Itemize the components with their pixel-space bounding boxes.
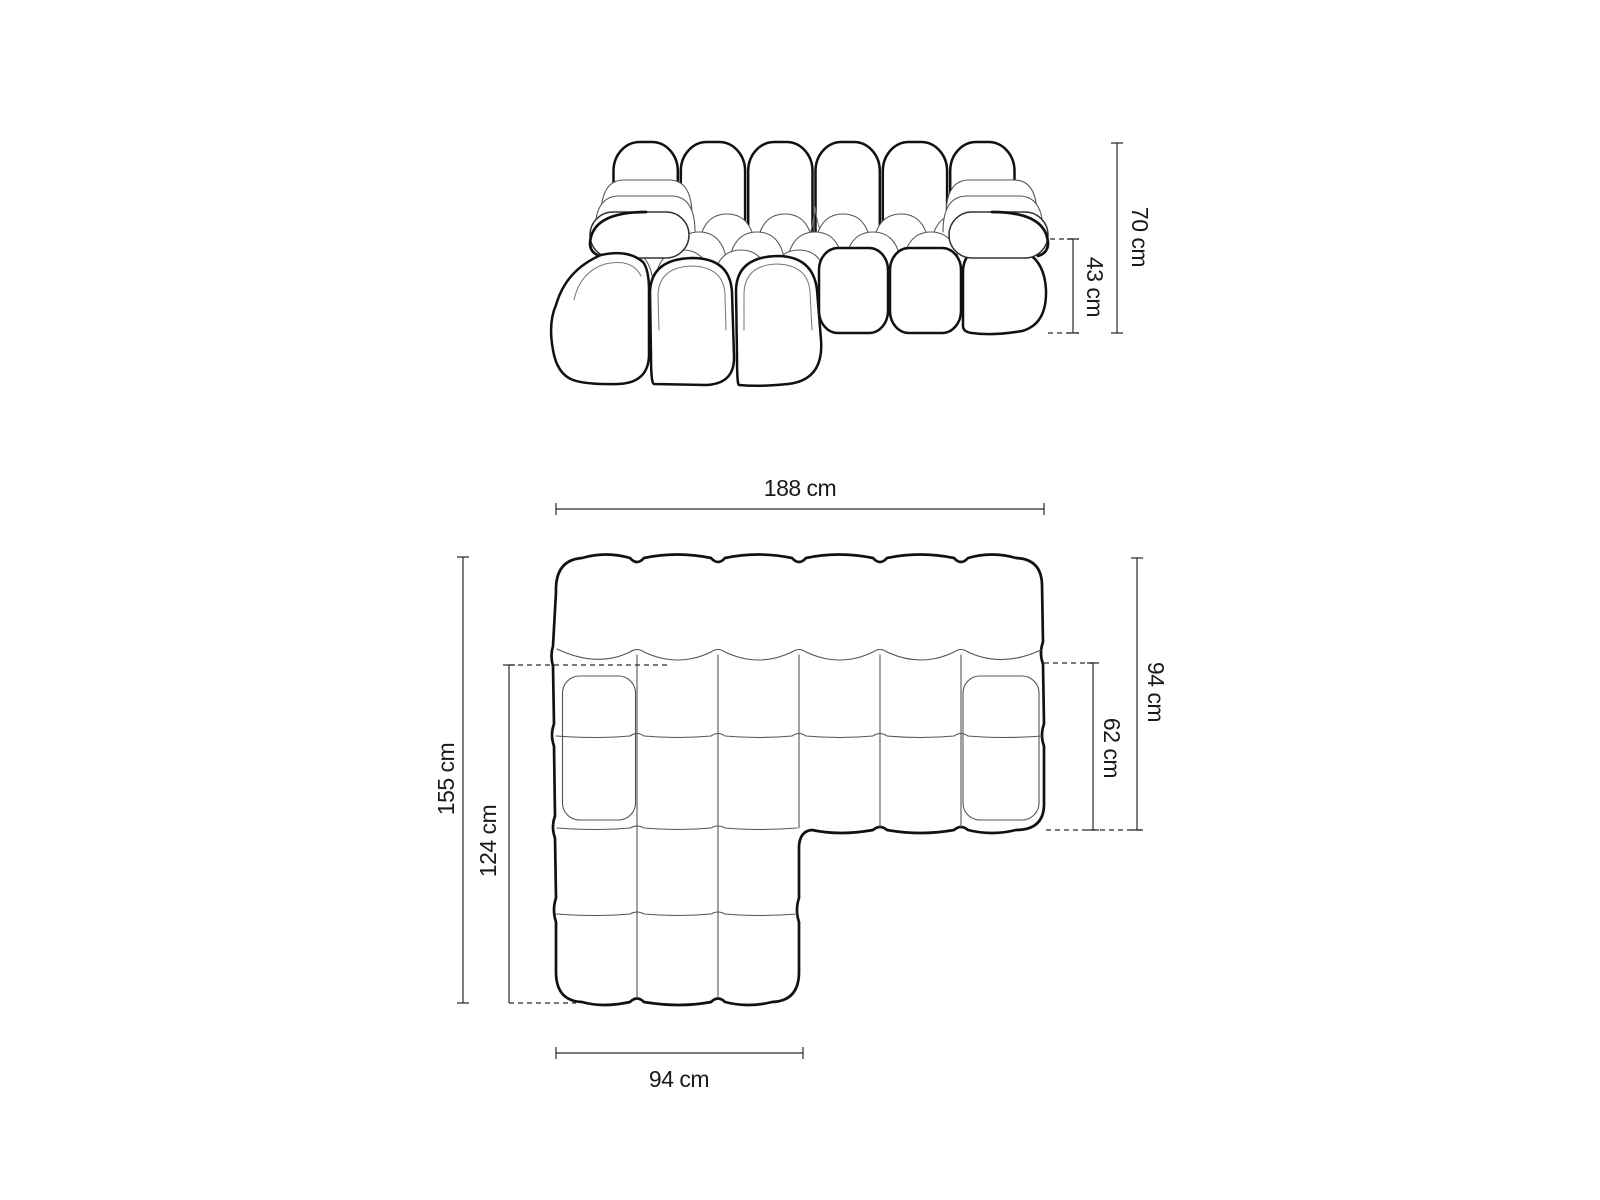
chaise-cushions bbox=[551, 253, 821, 386]
armrest-right bbox=[943, 180, 1048, 258]
dimension-line-seat-depth bbox=[1087, 663, 1099, 830]
dimension-line-chaise-depth bbox=[503, 665, 515, 1003]
dimension-line-total-width bbox=[556, 503, 1044, 515]
dim-label-body-depth: 94 cm bbox=[1143, 662, 1169, 722]
front-view: 70 cm 43 cm bbox=[551, 142, 1153, 386]
top-view: 188 cm 155 cm 124 cm 94 cm 62 cm 94 cm bbox=[433, 475, 1169, 1092]
dimension-line-total-height bbox=[1111, 143, 1123, 333]
plan-outline bbox=[552, 555, 1045, 1006]
sofa-dimensions-diagram: 70 cm 43 cm bbox=[0, 0, 1600, 1200]
dimension-line-seat-height bbox=[1067, 239, 1079, 333]
right-seat-cushions bbox=[819, 247, 1046, 334]
chaise-cushion bbox=[551, 253, 649, 384]
seat-cushion bbox=[890, 248, 961, 333]
chaise-cushion bbox=[650, 258, 734, 385]
dim-label-seat-depth: 62 cm bbox=[1099, 718, 1125, 778]
seat-cushion bbox=[819, 248, 888, 333]
armrest-left bbox=[590, 180, 695, 258]
front-view-dimensions: 70 cm 43 cm bbox=[1048, 143, 1153, 333]
dimension-line-chaise-width bbox=[556, 1047, 803, 1059]
dim-label-total-height: 70 cm bbox=[1127, 207, 1153, 267]
dim-label-total-width: 188 cm bbox=[764, 475, 836, 501]
dim-label-chaise-width: 94 cm bbox=[649, 1066, 709, 1092]
dim-label-total-depth: 155 cm bbox=[433, 743, 459, 815]
corner-seat-cushion bbox=[963, 247, 1046, 334]
dim-label-seat-height: 43 cm bbox=[1082, 257, 1108, 317]
dimension-line-body-depth bbox=[1131, 558, 1143, 830]
dim-label-chaise-depth: 124 cm bbox=[475, 805, 501, 877]
